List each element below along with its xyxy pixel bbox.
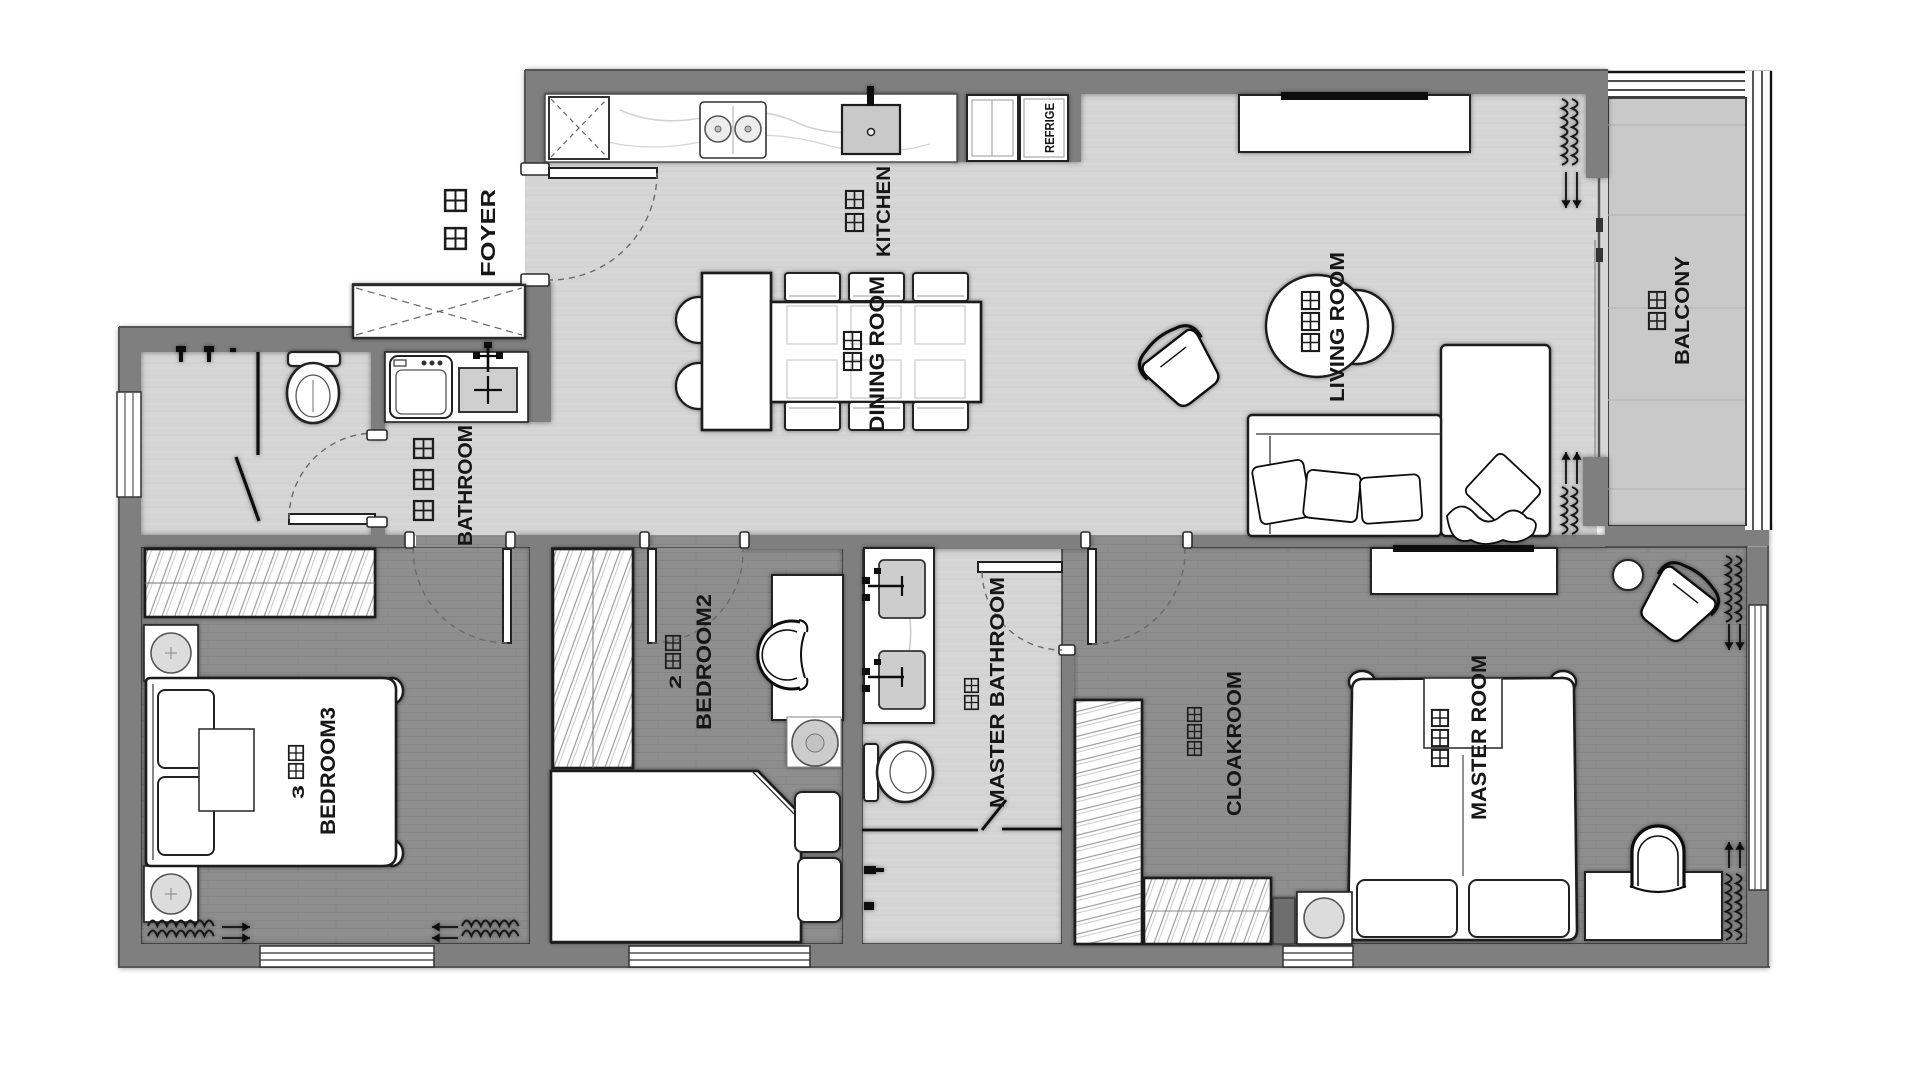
svg-text:MASTER ROOM: MASTER ROOM bbox=[1468, 655, 1491, 820]
svg-text:CLOAKROOM: CLOAKROOM bbox=[1224, 671, 1246, 816]
svg-text:FOYER: FOYER bbox=[478, 188, 500, 277]
svg-text:REFRIGE: REFRIGE bbox=[1042, 103, 1057, 153]
svg-text:LIVING ROOM: LIVING ROOM bbox=[1327, 252, 1349, 402]
svg-text:BEDROOM3: BEDROOM3 bbox=[317, 707, 340, 835]
svg-text:DINING ROOM: DINING ROOM bbox=[866, 276, 889, 432]
svg-text:2: 2 bbox=[666, 675, 685, 689]
svg-text:BEDROOM2: BEDROOM2 bbox=[693, 594, 716, 730]
svg-text:3: 3 bbox=[289, 785, 308, 799]
svg-text:BALCONY: BALCONY bbox=[1672, 255, 1694, 365]
svg-text:KITCHEN: KITCHEN bbox=[874, 166, 895, 257]
svg-text:MASTER BATHROOM: MASTER BATHROOM bbox=[987, 577, 1009, 808]
svg-text:BATHROOM: BATHROOM bbox=[455, 425, 477, 546]
